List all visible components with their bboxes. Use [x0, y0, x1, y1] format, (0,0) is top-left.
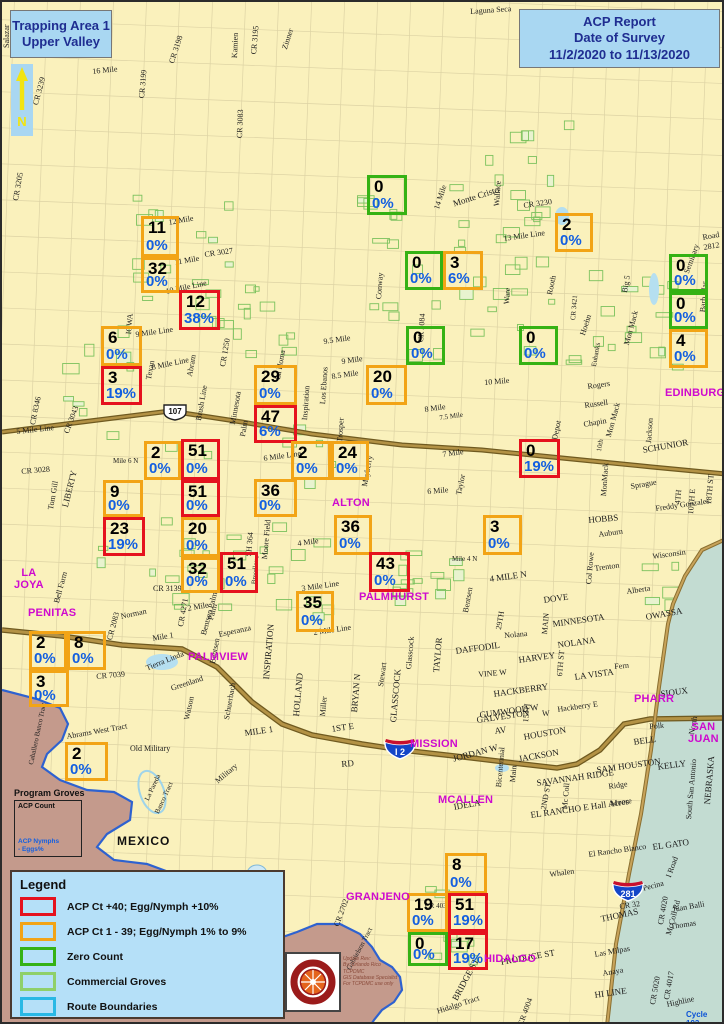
road-label: CR 3139	[153, 585, 182, 593]
trap-box: 30%	[29, 670, 69, 707]
legend-item-label: Commercial Groves	[67, 976, 166, 988]
commercial-grove	[64, 397, 74, 401]
trap-box: 36%	[443, 251, 483, 290]
commercial-grove	[459, 221, 469, 228]
commercial-grove	[85, 344, 94, 356]
egg-nymph-percent: 0%	[259, 386, 281, 402]
report-title: ACP Report	[520, 14, 719, 30]
egg-nymph-percent: 0%	[186, 574, 208, 590]
commercial-grove	[389, 312, 399, 320]
acp-count: 0	[374, 178, 383, 196]
map-credits: Update Rev:By: Orlando RicoTCPDMCGIS Dat…	[343, 956, 433, 987]
commercial-grove	[246, 350, 257, 357]
commercial-grove	[486, 155, 493, 165]
program-groves-title: Program Groves	[14, 788, 94, 798]
egg-nymph-percent: 0%	[412, 913, 434, 929]
trapping-area-map: SalazarCR 3239CR 320516 MileCR 3199CR 31…	[0, 0, 724, 1024]
commercial-grove	[659, 347, 665, 356]
commercial-grove	[642, 564, 658, 571]
svg-text:107: 107	[168, 407, 182, 416]
commercial-grove	[291, 550, 305, 561]
trap-box: 430%	[369, 552, 410, 592]
road-label: AV	[494, 725, 507, 736]
egg-nymph-percent: 19%	[108, 537, 138, 553]
egg-nymph-percent: 0%	[186, 461, 208, 477]
acp-count: 29	[261, 368, 280, 386]
legend-item: ACP Ct 1 - 39; Egg/Nymph 1% to 9%	[20, 919, 275, 944]
egg-nymph-percent: 0%	[674, 349, 696, 365]
commercial-grove	[276, 599, 291, 610]
legend-item-label: ACP Ct 1 - 39; Egg/Nymph 1% to 9%	[67, 926, 247, 938]
map-title-line1: Trapping Area 1	[11, 18, 111, 34]
trap-box: 290%	[254, 365, 297, 405]
trap-box: 476%	[254, 405, 297, 443]
trap-box: 20%	[144, 441, 181, 480]
trap-box: 90%	[103, 480, 143, 517]
legend-title: Legend	[20, 877, 275, 892]
commercial-grove	[268, 574, 275, 583]
city-label: PHARR	[634, 694, 674, 706]
commercial-grove	[383, 303, 398, 311]
commercial-grove	[227, 535, 241, 539]
acp-count: 3	[490, 518, 499, 536]
citrus-seal-icon	[290, 957, 336, 1007]
legend-swatch	[20, 897, 56, 916]
egg-nymph-percent: 0%	[339, 536, 361, 552]
acp-count: 43	[376, 555, 395, 573]
egg-nymph-percent: 0%	[301, 613, 323, 629]
trap-box: 110%	[141, 216, 179, 257]
trap-box: 200%	[181, 517, 220, 557]
trap-box: 350%	[296, 591, 334, 632]
trap-box: 60%	[101, 326, 142, 366]
trap-box: 80%	[67, 631, 106, 670]
trap-box: 200%	[366, 365, 407, 405]
egg-nymph-percent: 0%	[674, 273, 696, 289]
egg-nymph-percent: 0%	[411, 346, 433, 362]
legend-item: Route Boundaries	[20, 994, 275, 1019]
acp-count: 0	[526, 442, 535, 460]
acp-count: 2	[36, 634, 45, 652]
trap-box: 20%	[291, 441, 331, 480]
acp-count: 23	[110, 520, 129, 538]
egg-nymph-percent: 0%	[149, 461, 171, 477]
commercial-grove	[225, 262, 233, 267]
acp-count: 51	[188, 442, 207, 460]
road-label: Trosper	[336, 417, 346, 442]
legend-swatch	[20, 972, 56, 991]
commercial-grove	[133, 195, 142, 201]
egg-nymph-percent: 0%	[106, 347, 128, 363]
north-arrow-icon	[11, 64, 33, 116]
trap-box: 360%	[254, 479, 297, 517]
city-label: PENITAS	[28, 608, 76, 620]
city-label: ALTON	[332, 498, 370, 510]
commercial-grove	[273, 523, 287, 532]
egg-nymph-percent: 0%	[372, 196, 394, 212]
legend-swatch	[20, 947, 56, 966]
commercial-grove	[254, 287, 259, 291]
legend-item-label: Route Boundaries	[67, 1001, 157, 1013]
egg-nymph-percent: 19%	[453, 951, 483, 967]
commercial-grove	[564, 121, 574, 130]
trap-box: 320%	[181, 557, 220, 593]
trap-box: 00%	[669, 254, 708, 292]
commercial-grove	[161, 518, 172, 525]
legend-item: ACP Ct +40; Egg/Nymph +10%	[20, 894, 275, 919]
road-label: CR 3083	[236, 109, 245, 138]
trap-box: 360%	[334, 515, 372, 555]
egg-nymph-percent: 0%	[560, 233, 582, 249]
egg-nymph-percent: 0%	[410, 271, 432, 287]
road-label: RD	[341, 759, 354, 769]
acp-count: 35	[303, 594, 322, 612]
egg-nymph-percent: 0%	[146, 274, 168, 290]
acp-count: 6	[108, 329, 117, 347]
cycle-label: Cycle 193	[686, 1010, 722, 1024]
commercial-grove	[459, 240, 465, 246]
acp-count: 19	[414, 896, 433, 914]
egg-nymph-percent: 6%	[448, 271, 470, 287]
egg-nymph-percent: 19%	[453, 913, 483, 929]
commercial-grove	[196, 232, 205, 238]
commercial-grove	[370, 304, 379, 310]
trap-box: 510%	[181, 480, 220, 517]
city-label: PALMVIEW	[188, 652, 248, 664]
map-title-line2: Upper Valley	[11, 34, 111, 50]
road-label: W	[542, 710, 550, 718]
commercial-grove	[305, 479, 316, 488]
egg-nymph-percent: 0%	[186, 538, 208, 554]
road-label: Mile 6 N	[113, 458, 138, 465]
egg-nymph-percent: 0%	[259, 498, 281, 514]
svg-text:I 2: I 2	[395, 747, 405, 757]
legend: Legend ACP Ct +40; Egg/Nymph +10%ACP Ct …	[10, 870, 285, 1019]
mexico-label: MEXICO	[117, 834, 170, 848]
legend-swatch	[20, 997, 56, 1016]
commercial-grove	[608, 344, 615, 350]
acp-nymphs-label: ACP Nymphs - Eggs%	[18, 838, 78, 854]
commercial-grove	[209, 237, 218, 243]
egg-nymph-percent: 0%	[186, 498, 208, 514]
acp-count: 0	[413, 329, 422, 347]
egg-nymph-percent: 0%	[674, 310, 696, 326]
acp-count: 2	[151, 444, 160, 462]
legend-swatch	[20, 922, 56, 941]
acp-count: 24	[338, 444, 357, 462]
trap-box: 40%	[669, 329, 708, 368]
egg-nymph-percent: 0%	[70, 762, 92, 778]
trap-box: 20%	[29, 631, 67, 670]
commercial-grove	[166, 576, 179, 583]
interstate-shield: 281	[610, 878, 646, 908]
commercial-grove	[471, 329, 484, 336]
commercial-grove	[505, 265, 519, 275]
trap-box: 319%	[101, 366, 142, 405]
acp-count: 8	[452, 856, 461, 874]
commercial-grove	[589, 271, 602, 281]
trap-box: 20%	[65, 742, 108, 781]
egg-nymph-percent: 0%	[488, 536, 510, 552]
road-label: Mile 4 N	[452, 556, 477, 563]
city-label: MCALLEN	[438, 795, 493, 807]
acp-count: 51	[455, 896, 474, 914]
egg-nymph-percent: 19%	[524, 459, 554, 475]
commercial-grove	[437, 579, 450, 591]
commercial-grove	[549, 299, 555, 304]
trap-box: 1238%	[179, 290, 220, 330]
acp-count: 2	[298, 444, 307, 462]
map-title-box: Trapping Area 1 Upper Valley	[10, 10, 112, 58]
trap-box: 00%	[669, 292, 708, 329]
svg-text:281: 281	[620, 889, 635, 899]
trap-box: 1719%	[448, 932, 488, 970]
commercial-grove	[150, 569, 156, 576]
road-label: Fern	[614, 662, 629, 671]
road-label: Polk	[649, 722, 664, 731]
egg-nymph-percent: 0%	[108, 498, 130, 514]
trap-box: 00%	[367, 175, 407, 215]
credit-line: For TCPDMC use only	[343, 981, 433, 987]
commercial-grove	[536, 257, 548, 267]
commercial-grove	[522, 131, 534, 141]
trap-box: 019%	[519, 439, 560, 478]
north-letter: N	[17, 114, 26, 129]
survey-label: Date of Survey	[520, 30, 719, 46]
trap-box: 20%	[555, 213, 593, 252]
acp-count: 36	[341, 518, 360, 536]
commercial-grove	[107, 432, 119, 440]
trap-box: 80%	[445, 853, 487, 894]
commercial-grove	[547, 175, 553, 186]
road-label: Old Military	[130, 745, 170, 753]
commercial-grove	[569, 356, 581, 363]
commercial-grove	[515, 257, 527, 269]
commercial-grove	[97, 558, 105, 568]
legend-item: Commercial Groves	[20, 969, 275, 994]
trap-box: 00%	[405, 251, 443, 290]
egg-nymph-percent: 0%	[371, 386, 393, 402]
north-arrow: N	[11, 64, 33, 136]
commercial-grove	[488, 307, 497, 312]
program-groves-key: Program Groves ACP Count ACP Nymphs - Eg…	[14, 788, 94, 857]
acp-count: 12	[186, 293, 205, 311]
commercial-grove	[432, 301, 440, 309]
report-title-box: ACP Report Date of Survey 11/2/2020 to 1…	[519, 9, 720, 68]
commercial-grove	[450, 185, 463, 191]
survey-dates: 11/2/2020 to 11/13/2020	[520, 47, 719, 63]
egg-nymph-percent: 0%	[34, 651, 56, 667]
commercial-grove	[143, 296, 153, 300]
city-label: GRANJENO	[346, 892, 410, 904]
trap-box: 00%	[406, 326, 445, 365]
egg-nymph-percent: 38%	[184, 311, 214, 327]
trap-box: 2319%	[103, 517, 145, 556]
city-label: SAN JUAN	[688, 722, 719, 745]
egg-nymph-percent: 0%	[336, 461, 358, 477]
egg-nymph-percent: 0%	[146, 238, 168, 254]
trap-box: 30%	[483, 515, 522, 555]
egg-nymph-percent: 0%	[524, 346, 546, 362]
commercial-grove	[645, 597, 659, 604]
city-label: LA JOYA	[14, 568, 44, 591]
acp-count: 3	[108, 369, 117, 387]
trap-box: 190%	[407, 893, 448, 932]
egg-nymph-percent: 6%	[259, 424, 281, 440]
commercial-grove	[528, 157, 536, 164]
acp-count: 0	[412, 254, 421, 272]
program-groves-box: ACP Count ACP Nymphs - Eggs%	[14, 800, 82, 857]
commercial-grove	[431, 572, 444, 578]
road-label: Main	[509, 765, 518, 783]
acp-count: 4	[676, 332, 685, 350]
trap-box: 240%	[331, 441, 369, 480]
commercial-grove	[373, 238, 390, 243]
acp-count-label: ACP Count	[18, 803, 78, 810]
commercial-grove	[454, 570, 464, 581]
acp-count: 2	[72, 745, 81, 763]
road-label: Ware	[503, 287, 512, 304]
egg-nymph-percent: 19%	[106, 386, 136, 402]
road-label: Kamien	[231, 33, 240, 59]
egg-nymph-percent: 0%	[34, 688, 56, 704]
city-label: PALMHURST	[359, 592, 429, 604]
commercial-grove	[511, 191, 526, 200]
acp-count: 3	[450, 254, 459, 272]
commercial-grove	[63, 364, 79, 374]
acp-count: 20	[188, 520, 207, 538]
trap-box: 320%	[141, 257, 179, 293]
legend-item: Zero Count	[20, 944, 275, 969]
commercial-grove	[672, 562, 679, 570]
city-label: HIDALGO	[484, 954, 536, 966]
trap-box: 510%	[220, 552, 258, 593]
acp-count: 51	[227, 555, 246, 573]
commercial-grove	[234, 329, 242, 339]
acp-count: 2	[562, 216, 571, 234]
commercial-grove	[260, 302, 275, 311]
egg-nymph-percent: 0%	[225, 574, 247, 590]
acp-count: 11	[148, 219, 166, 237]
trap-box: 00%	[519, 326, 558, 365]
acp-count: 20	[373, 368, 392, 386]
egg-nymph-percent: 0%	[72, 651, 94, 667]
legend-item-label: Zero Count	[67, 951, 123, 963]
commercial-grove	[601, 306, 614, 316]
commercial-grove	[79, 408, 87, 415]
tcpdmc-logo	[285, 952, 341, 1012]
acp-count: 0	[526, 329, 535, 347]
egg-nymph-percent: 0%	[374, 573, 396, 589]
trap-box: 5119%	[448, 893, 488, 932]
city-label: EDINBURG	[665, 388, 724, 400]
egg-nymph-percent: 0%	[296, 461, 318, 477]
trap-box: 510%	[181, 439, 220, 480]
legend-item-label: ACP Ct +40; Egg/Nymph +10%	[67, 901, 219, 913]
us-route-shield: 107	[162, 402, 188, 427]
egg-nymph-percent: 0%	[450, 875, 472, 891]
city-label: MISSION	[410, 739, 458, 751]
acp-count: 8	[74, 634, 83, 652]
